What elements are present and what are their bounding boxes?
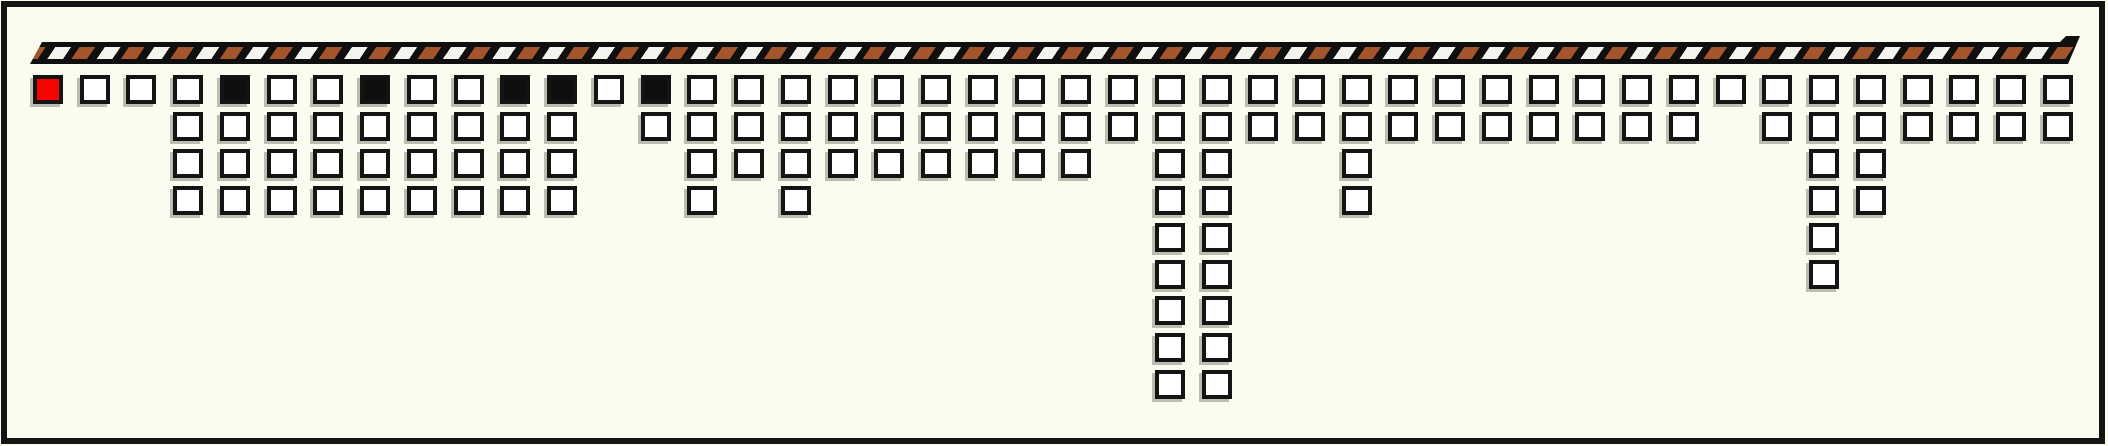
square[interactable] <box>1388 112 1418 141</box>
square[interactable] <box>1716 75 1746 104</box>
square[interactable] <box>313 112 343 141</box>
square[interactable] <box>1342 112 1372 141</box>
square[interactable] <box>1202 333 1232 362</box>
square[interactable] <box>1248 75 1278 104</box>
square[interactable] <box>1061 75 1091 104</box>
square[interactable] <box>1388 75 1418 104</box>
square[interactable] <box>734 75 764 104</box>
square[interactable] <box>1575 112 1605 141</box>
square[interactable] <box>687 75 717 104</box>
square[interactable] <box>267 186 297 215</box>
square[interactable] <box>1575 75 1605 104</box>
panel <box>0 0 2108 446</box>
square[interactable] <box>1202 75 1232 104</box>
square[interactable] <box>173 112 203 141</box>
square[interactable] <box>173 149 203 178</box>
square[interactable] <box>781 112 811 141</box>
square[interactable] <box>874 75 904 104</box>
square[interactable] <box>734 112 764 141</box>
square[interactable] <box>968 75 998 104</box>
square[interactable] <box>1949 112 1979 141</box>
square[interactable] <box>1342 186 1372 215</box>
square[interactable] <box>1155 75 1185 104</box>
square[interactable] <box>500 112 530 141</box>
square[interactable] <box>641 112 671 141</box>
square[interactable] <box>1622 112 1652 141</box>
square[interactable] <box>1669 112 1699 141</box>
square[interactable] <box>1202 260 1232 289</box>
square[interactable] <box>407 112 437 141</box>
square[interactable] <box>1809 149 1839 178</box>
square[interactable] <box>1856 186 1886 215</box>
square[interactable] <box>454 186 484 215</box>
square[interactable] <box>500 149 530 178</box>
square[interactable] <box>1202 186 1232 215</box>
ribbon-stripes-pattern <box>30 47 2074 59</box>
square[interactable] <box>1295 112 1325 141</box>
square[interactable] <box>547 186 577 215</box>
square[interactable] <box>126 75 156 104</box>
square[interactable] <box>1809 186 1839 215</box>
square[interactable] <box>1155 296 1185 325</box>
square[interactable] <box>1155 149 1185 178</box>
square[interactable] <box>921 112 951 141</box>
square[interactable] <box>781 75 811 104</box>
square[interactable] <box>173 75 203 104</box>
square[interactable] <box>407 149 437 178</box>
square[interactable] <box>1903 112 1933 141</box>
square[interactable] <box>313 149 343 178</box>
square[interactable] <box>1809 223 1839 252</box>
square[interactable] <box>220 186 250 215</box>
square[interactable] <box>1015 75 1045 104</box>
square[interactable] <box>781 149 811 178</box>
square[interactable] <box>1342 75 1372 104</box>
square[interactable] <box>1529 75 1559 104</box>
square[interactable] <box>1015 149 1045 178</box>
square[interactable] <box>1108 75 1138 104</box>
square[interactable] <box>407 186 437 215</box>
square[interactable] <box>173 186 203 215</box>
square[interactable] <box>360 186 390 215</box>
square[interactable] <box>921 75 951 104</box>
square[interactable] <box>1342 149 1372 178</box>
square[interactable] <box>828 75 858 104</box>
square[interactable] <box>1435 75 1465 104</box>
square[interactable] <box>1061 149 1091 178</box>
square[interactable] <box>781 186 811 215</box>
square[interactable] <box>500 186 530 215</box>
striped-ribbon <box>28 36 2084 66</box>
square[interactable] <box>267 75 297 104</box>
square[interactable] <box>1996 112 2026 141</box>
square[interactable] <box>1856 112 1886 141</box>
square[interactable] <box>1996 75 2026 104</box>
square[interactable] <box>360 149 390 178</box>
square[interactable] <box>220 149 250 178</box>
square[interactable] <box>828 149 858 178</box>
square[interactable] <box>734 149 764 178</box>
square[interactable] <box>220 112 250 141</box>
square[interactable] <box>1809 75 1839 104</box>
square[interactable] <box>874 149 904 178</box>
square[interactable] <box>1155 223 1185 252</box>
square[interactable] <box>454 149 484 178</box>
square[interactable] <box>1155 370 1185 399</box>
square[interactable] <box>547 112 577 141</box>
square[interactable] <box>687 112 717 141</box>
square[interactable] <box>687 186 717 215</box>
square[interactable] <box>313 75 343 104</box>
square[interactable] <box>1155 112 1185 141</box>
square[interactable] <box>267 112 297 141</box>
square[interactable] <box>1202 149 1232 178</box>
square[interactable] <box>454 112 484 141</box>
square[interactable] <box>1809 260 1839 289</box>
square[interactable] <box>454 75 484 104</box>
square[interactable] <box>1949 75 1979 104</box>
square[interactable] <box>1295 75 1325 104</box>
square[interactable] <box>407 75 437 104</box>
square[interactable] <box>1762 75 1792 104</box>
black-square[interactable] <box>500 75 530 104</box>
square[interactable] <box>1856 149 1886 178</box>
square[interactable] <box>1856 75 1886 104</box>
square[interactable] <box>1622 75 1652 104</box>
square[interactable] <box>594 75 624 104</box>
square[interactable] <box>1762 112 1792 141</box>
panel-frame <box>1 1 2105 444</box>
square[interactable] <box>1061 112 1091 141</box>
square[interactable] <box>1155 260 1185 289</box>
square[interactable] <box>1482 75 1512 104</box>
square[interactable] <box>1529 112 1559 141</box>
square[interactable] <box>1108 112 1138 141</box>
square[interactable] <box>1155 186 1185 215</box>
black-square[interactable] <box>360 75 390 104</box>
square[interactable] <box>547 149 577 178</box>
square[interactable] <box>1482 112 1512 141</box>
black-square[interactable] <box>220 75 250 104</box>
square[interactable] <box>1015 112 1045 141</box>
red-square[interactable] <box>33 75 63 104</box>
square[interactable] <box>1202 223 1232 252</box>
square[interactable] <box>968 149 998 178</box>
square[interactable] <box>687 149 717 178</box>
square[interactable] <box>1202 112 1232 141</box>
square[interactable] <box>1202 296 1232 325</box>
black-square[interactable] <box>641 75 671 104</box>
square[interactable] <box>267 149 297 178</box>
square[interactable] <box>2043 75 2073 104</box>
black-square[interactable] <box>547 75 577 104</box>
square[interactable] <box>313 186 343 215</box>
square[interactable] <box>1202 370 1232 399</box>
square[interactable] <box>1809 112 1839 141</box>
square[interactable] <box>2043 112 2073 141</box>
square[interactable] <box>1903 75 1933 104</box>
square[interactable] <box>1435 112 1465 141</box>
square[interactable] <box>1669 75 1699 104</box>
square[interactable] <box>1155 333 1185 362</box>
square[interactable] <box>828 112 858 141</box>
square[interactable] <box>874 112 904 141</box>
square[interactable] <box>360 112 390 141</box>
square[interactable] <box>1248 112 1278 141</box>
square[interactable] <box>968 112 998 141</box>
square[interactable] <box>80 75 110 104</box>
square[interactable] <box>921 149 951 178</box>
